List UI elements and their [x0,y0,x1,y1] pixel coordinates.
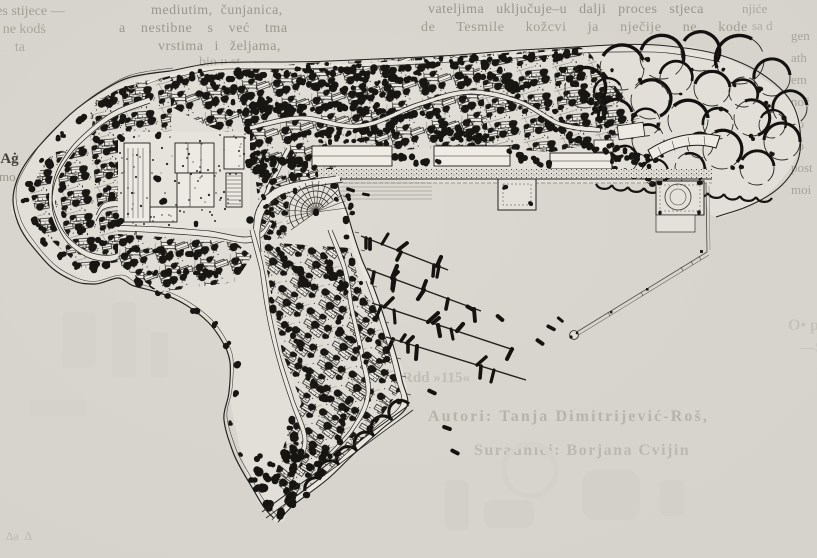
svg-text:smo: smo [0,169,16,184]
svg-text:vateljima uključuje–u dalji pr: vateljima uključuje–u dalji proces stjec… [428,2,704,17]
svg-text:sa d: sa d [752,18,773,33]
svg-text:gen: gen [791,28,810,43]
svg-text:Autori: Tanja Dimitrijević-Roš: Autori: Tanja Dimitrijević-Roš, [428,408,709,425]
svg-text:njiće: njiće [742,1,767,16]
svg-text:moi: moi [791,182,812,197]
svg-text:Rdd »115«: Rdd »115« [402,370,470,386]
svg-text:em: em [791,72,807,87]
svg-text:vrstima i željama,: vrstima i željama, [158,39,281,54]
svg-text:∆a ∆: ∆a ∆ [6,529,33,543]
svg-text:mediutim, čunjanica,: mediutim, čunjanica, [151,3,283,18]
svg-text:O• p: O• p [788,317,817,334]
svg-text:—S: —S [799,340,817,356]
svg-text:ces stijece —: ces stijece — [0,4,66,19]
svg-text:đa ne kodṡ: đa ne kodṡ [0,22,46,37]
svg-text:ath: ath [791,50,807,65]
svg-text:SAġ: SAġ [0,151,19,167]
svg-text:a nestibne s već tma: a nestibne s već tma [119,21,288,36]
svg-text:vi ta: vi ta [0,40,26,55]
